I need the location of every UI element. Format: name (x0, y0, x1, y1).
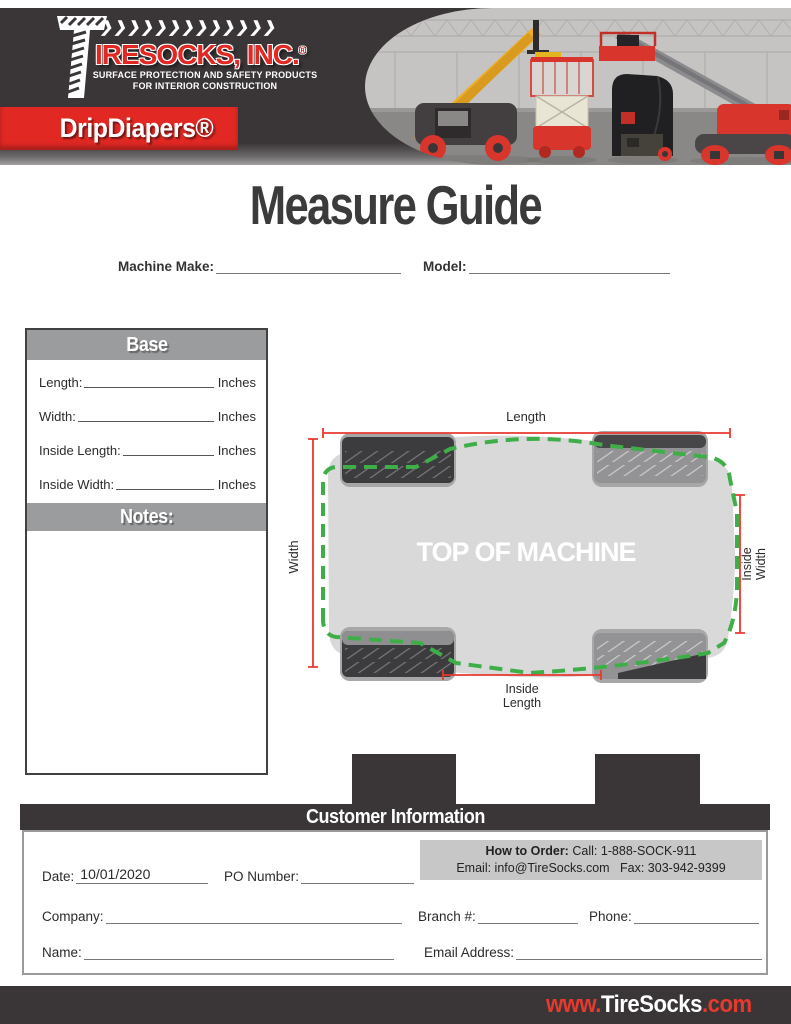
branch-field: Branch #: (418, 908, 578, 924)
base-section-header: Base (27, 330, 266, 360)
base-section-title: Base (126, 334, 167, 357)
branch-label: Branch #: (418, 909, 476, 924)
length-dim-label: Length (506, 409, 546, 424)
order-fax: Fax: 303-942-9399 (620, 861, 726, 875)
brand-tagline-2: FOR INTERIOR CONSTRUCTION (91, 81, 319, 91)
company-field: Company: (42, 908, 402, 924)
tire-top-left (342, 437, 454, 483)
model-label: Model: (423, 259, 467, 274)
width-field: Width: Inches (39, 408, 256, 424)
tire-top-right (594, 435, 706, 483)
email-label: Email Address: (424, 945, 514, 960)
tire-track-icon: ❯❯❯❯❯❯❯❯❯❯❯❯❯ (99, 18, 279, 36)
length-unit: Inches (218, 375, 256, 390)
notes-area[interactable] (27, 531, 266, 772)
email-input-line[interactable] (516, 944, 762, 960)
po-number-input-line[interactable] (301, 868, 414, 884)
length-field: Length: Inches (39, 374, 256, 390)
date-label: Date: (42, 869, 74, 884)
inside-length-label: Inside Length: (39, 443, 121, 458)
order-call: Call: 1-888-SOCK-911 (572, 844, 696, 858)
width-dim-label: Width (288, 540, 301, 573)
inside-length-dim-label-2: Length (503, 696, 541, 710)
brand-name: IRESOCKS, INC.® (95, 39, 305, 71)
brand-text: IRESOCKS, INC. (95, 39, 299, 70)
machine-diagram: Length Width Inside Width Inside Length … (288, 403, 765, 715)
how-to-order-box: How to Order: Call: 1-888-SOCK-911 Email… (420, 840, 762, 880)
po-number-label: PO Number: (224, 869, 299, 884)
brand-tagline-1: SURFACE PROTECTION AND SAFETY PRODUCTS (91, 70, 319, 80)
width-input-line[interactable] (78, 408, 214, 422)
inside-width-dim-label: Inside Width (740, 547, 765, 580)
length-input-line[interactable] (84, 374, 213, 388)
scissor-lift-illustration (531, 52, 593, 158)
order-line-2: Email: info@TireSocks.com Fax: 303-942-9… (456, 860, 725, 877)
inside-width-unit: Inches (218, 477, 256, 492)
left-leg-block (352, 754, 456, 806)
model-field: Model: (423, 258, 670, 274)
company-input-line[interactable] (106, 908, 402, 924)
name-label: Name: (42, 945, 82, 960)
inside-width-field: Inside Width: Inches (39, 476, 256, 492)
phone-input-line[interactable] (634, 908, 759, 924)
order-line-1: How to Order: Call: 1-888-SOCK-911 (486, 843, 697, 860)
name-input-line[interactable] (84, 944, 394, 960)
notes-section-title: Notes: (120, 506, 173, 529)
inside-width-label: Inside Width: (39, 477, 114, 492)
notes-section-header: Notes: (27, 503, 266, 531)
customer-info-header: Customer Information (20, 804, 770, 830)
product-banner: DripDiapers® (0, 107, 238, 150)
how-to-order-heading: How to Order: (486, 844, 569, 858)
width-unit: Inches (218, 409, 256, 424)
registered-mark: ® (299, 46, 305, 57)
svg-text:Width: Width (754, 548, 765, 580)
top-of-machine-label: TOP OF MACHINE (416, 537, 635, 567)
base-fields: Length: Inches Width: Inches Inside Leng… (27, 360, 266, 503)
machine-make-label: Machine Make: (118, 259, 214, 274)
header-banner: ❯❯❯❯❯❯❯❯❯❯❯❯❯ IRESOCKS, INC.® SURFACE PR… (0, 8, 791, 165)
inside-length-unit: Inches (218, 443, 256, 458)
inside-length-field: Inside Length: Inches (39, 442, 256, 458)
phone-field: Phone: (589, 908, 759, 924)
product-banner-label: DripDiapers® (59, 113, 213, 144)
page-title: Measure Guide (0, 176, 791, 236)
model-input-line[interactable] (469, 258, 671, 274)
date-value: 10/01/2020 (76, 866, 150, 882)
covered-machine-illustration (612, 74, 673, 161)
machine-make-input-line[interactable] (216, 258, 401, 274)
company-label: Company: (42, 909, 104, 924)
customer-info-title: Customer Information (305, 806, 484, 829)
measure-guide-page: ❯❯❯❯❯❯❯❯❯❯❯❯❯ IRESOCKS, INC.® SURFACE PR… (0, 0, 791, 1024)
inside-width-input-line[interactable] (116, 476, 214, 490)
machine-make-field: Machine Make: (118, 258, 401, 274)
width-label: Width: (39, 409, 76, 424)
brand-logo: ❯❯❯❯❯❯❯❯❯❯❯❯❯ IRESOCKS, INC.® SURFACE PR… (55, 8, 315, 108)
name-field: Name: (42, 944, 394, 960)
inside-length-input-line[interactable] (123, 442, 214, 456)
date-input-line[interactable]: 10/01/2020 (76, 868, 208, 884)
length-label: Length: (39, 375, 82, 390)
po-number-field: PO Number: (224, 868, 414, 884)
date-field: Date: 10/01/2020 (42, 868, 208, 884)
warehouse-photo (365, 8, 791, 165)
order-email[interactable]: Email: info@TireSocks.com (456, 861, 609, 875)
footer-url[interactable]: www.TireSocks.com (546, 991, 752, 1019)
email-field: Email Address: (424, 944, 762, 960)
branch-input-line[interactable] (478, 908, 578, 924)
base-panel: Base Length: Inches Width: Inches Inside… (25, 328, 268, 775)
customer-info-box: How to Order: Call: 1-888-SOCK-911 Email… (22, 830, 768, 975)
footer-bar: www.TireSocks.com (0, 986, 791, 1024)
phone-label: Phone: (589, 909, 632, 924)
svg-text:Inside: Inside (740, 547, 754, 580)
right-leg-block (595, 754, 700, 806)
inside-length-dim-label-1: Inside (505, 682, 538, 696)
